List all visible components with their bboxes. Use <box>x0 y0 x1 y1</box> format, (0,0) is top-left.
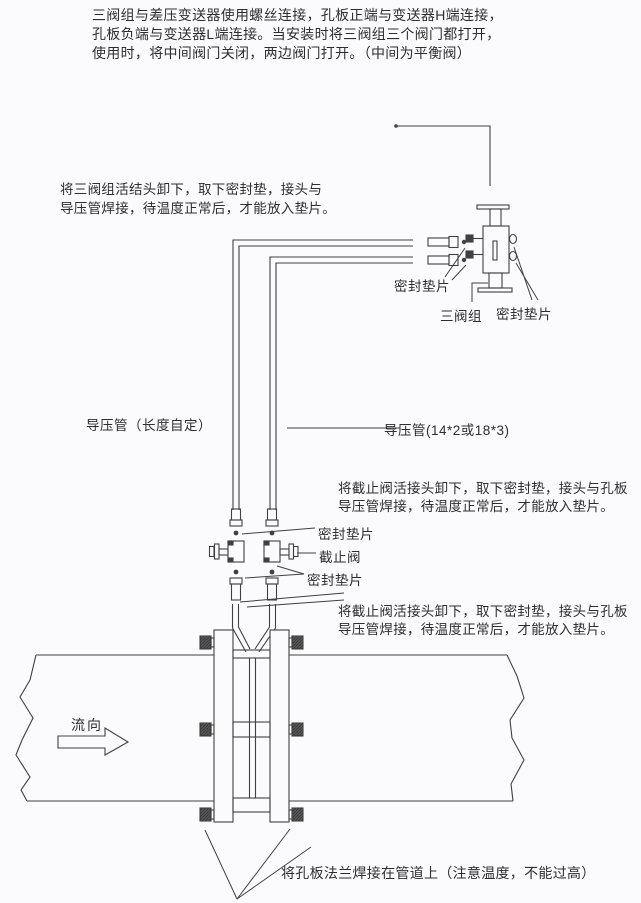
impulse-pipes-drawing <box>233 240 413 510</box>
stop-valve-note-upper-line1: 将截止阀活接头卸下，取下密封垫，接头与孔板 <box>338 480 628 498</box>
seal-gasket-top-label: 密封垫片 <box>318 523 374 543</box>
manifold-union-note: 将三阀组活结头卸下，取下密封垫，接头与 导压管焊接，待温度正常后，才能放入垫片。 <box>60 180 336 218</box>
manifold-union-note-line2: 导压管焊接，待温度正常后，才能放入垫片。 <box>60 199 336 218</box>
intro-note: 三阀组与差压变送器使用螺丝连接，孔板正端与变送器H端连接， 孔板负端与变送器L端… <box>92 6 503 63</box>
intro-leader-line <box>394 124 490 186</box>
stop-valve-note-lower-line1: 将截止阀活接头卸下，取下密封垫，接头与孔板 <box>338 603 628 621</box>
flange-tap-pipes-drawing <box>233 604 276 652</box>
diagram-canvas <box>0 0 641 903</box>
union-fittings-drawing <box>428 237 466 266</box>
seal-gasket-right-label: 密封垫片 <box>496 303 552 323</box>
diagram-page: 三阀组与差压变送器使用螺丝连接，孔板正端与变送器H端连接， 孔板负端与变送器L端… <box>0 0 641 903</box>
impulse-pipe-left-label: 导压管（长度自定） <box>86 414 212 434</box>
seal-gasket-left-label: 密封垫片 <box>394 275 450 295</box>
seal-gasket-bottom-label: 密封垫片 <box>307 569 363 589</box>
stop-valve-note-upper-line2: 导压管焊接，待温度正常后，才能放入垫片。 <box>338 498 628 516</box>
manifold-label-leaders <box>445 247 538 302</box>
intro-note-line1: 三阀组与差压变送器使用螺丝连接，孔板正端与变送器H端连接， <box>92 6 503 25</box>
impulse-pipe-right-label: 导压管(14*2或18*3) <box>384 419 510 439</box>
orifice-flange-drawing <box>200 630 303 822</box>
stop-valve-note-lower-line2: 导压管焊接，待温度正常后，才能放入垫片。 <box>338 621 628 639</box>
three-valve-manifold-label: 三阀组 <box>440 305 482 325</box>
three-valve-manifold-drawing <box>466 205 517 292</box>
flange-weld-note-line: 将孔板法兰焊接在管道上（注意温度，不能过高） <box>281 864 596 883</box>
stop-valve-note-lower: 将截止阀活接头卸下，取下密封垫，接头与孔板 导压管焊接，待温度正常后，才能放入垫… <box>338 603 628 639</box>
stop-valve-right-drawing <box>264 509 298 600</box>
intro-note-line3: 使用时，将中间阀门关闭，两边阀门打开。（中间为平衡阀） <box>92 44 503 63</box>
flow-direction-label: 流向 <box>71 715 103 735</box>
manifold-union-note-line1: 将三阀组活结头卸下，取下密封垫，接头与 <box>60 180 336 199</box>
stop-valve-note-upper: 将截止阀活接头卸下，取下密封垫，接头与孔板 导压管焊接，待温度正常后，才能放入垫… <box>338 480 628 516</box>
stop-valve-label: 截止阀 <box>319 546 361 566</box>
intro-note-line2: 孔板负端与变送器L端连接。当安装时将三阀组三个阀门都打开， <box>92 25 503 44</box>
flange-weld-note: 将孔板法兰焊接在管道上（注意温度，不能过高） <box>281 864 596 883</box>
stop-valve-left-drawing <box>210 509 245 600</box>
